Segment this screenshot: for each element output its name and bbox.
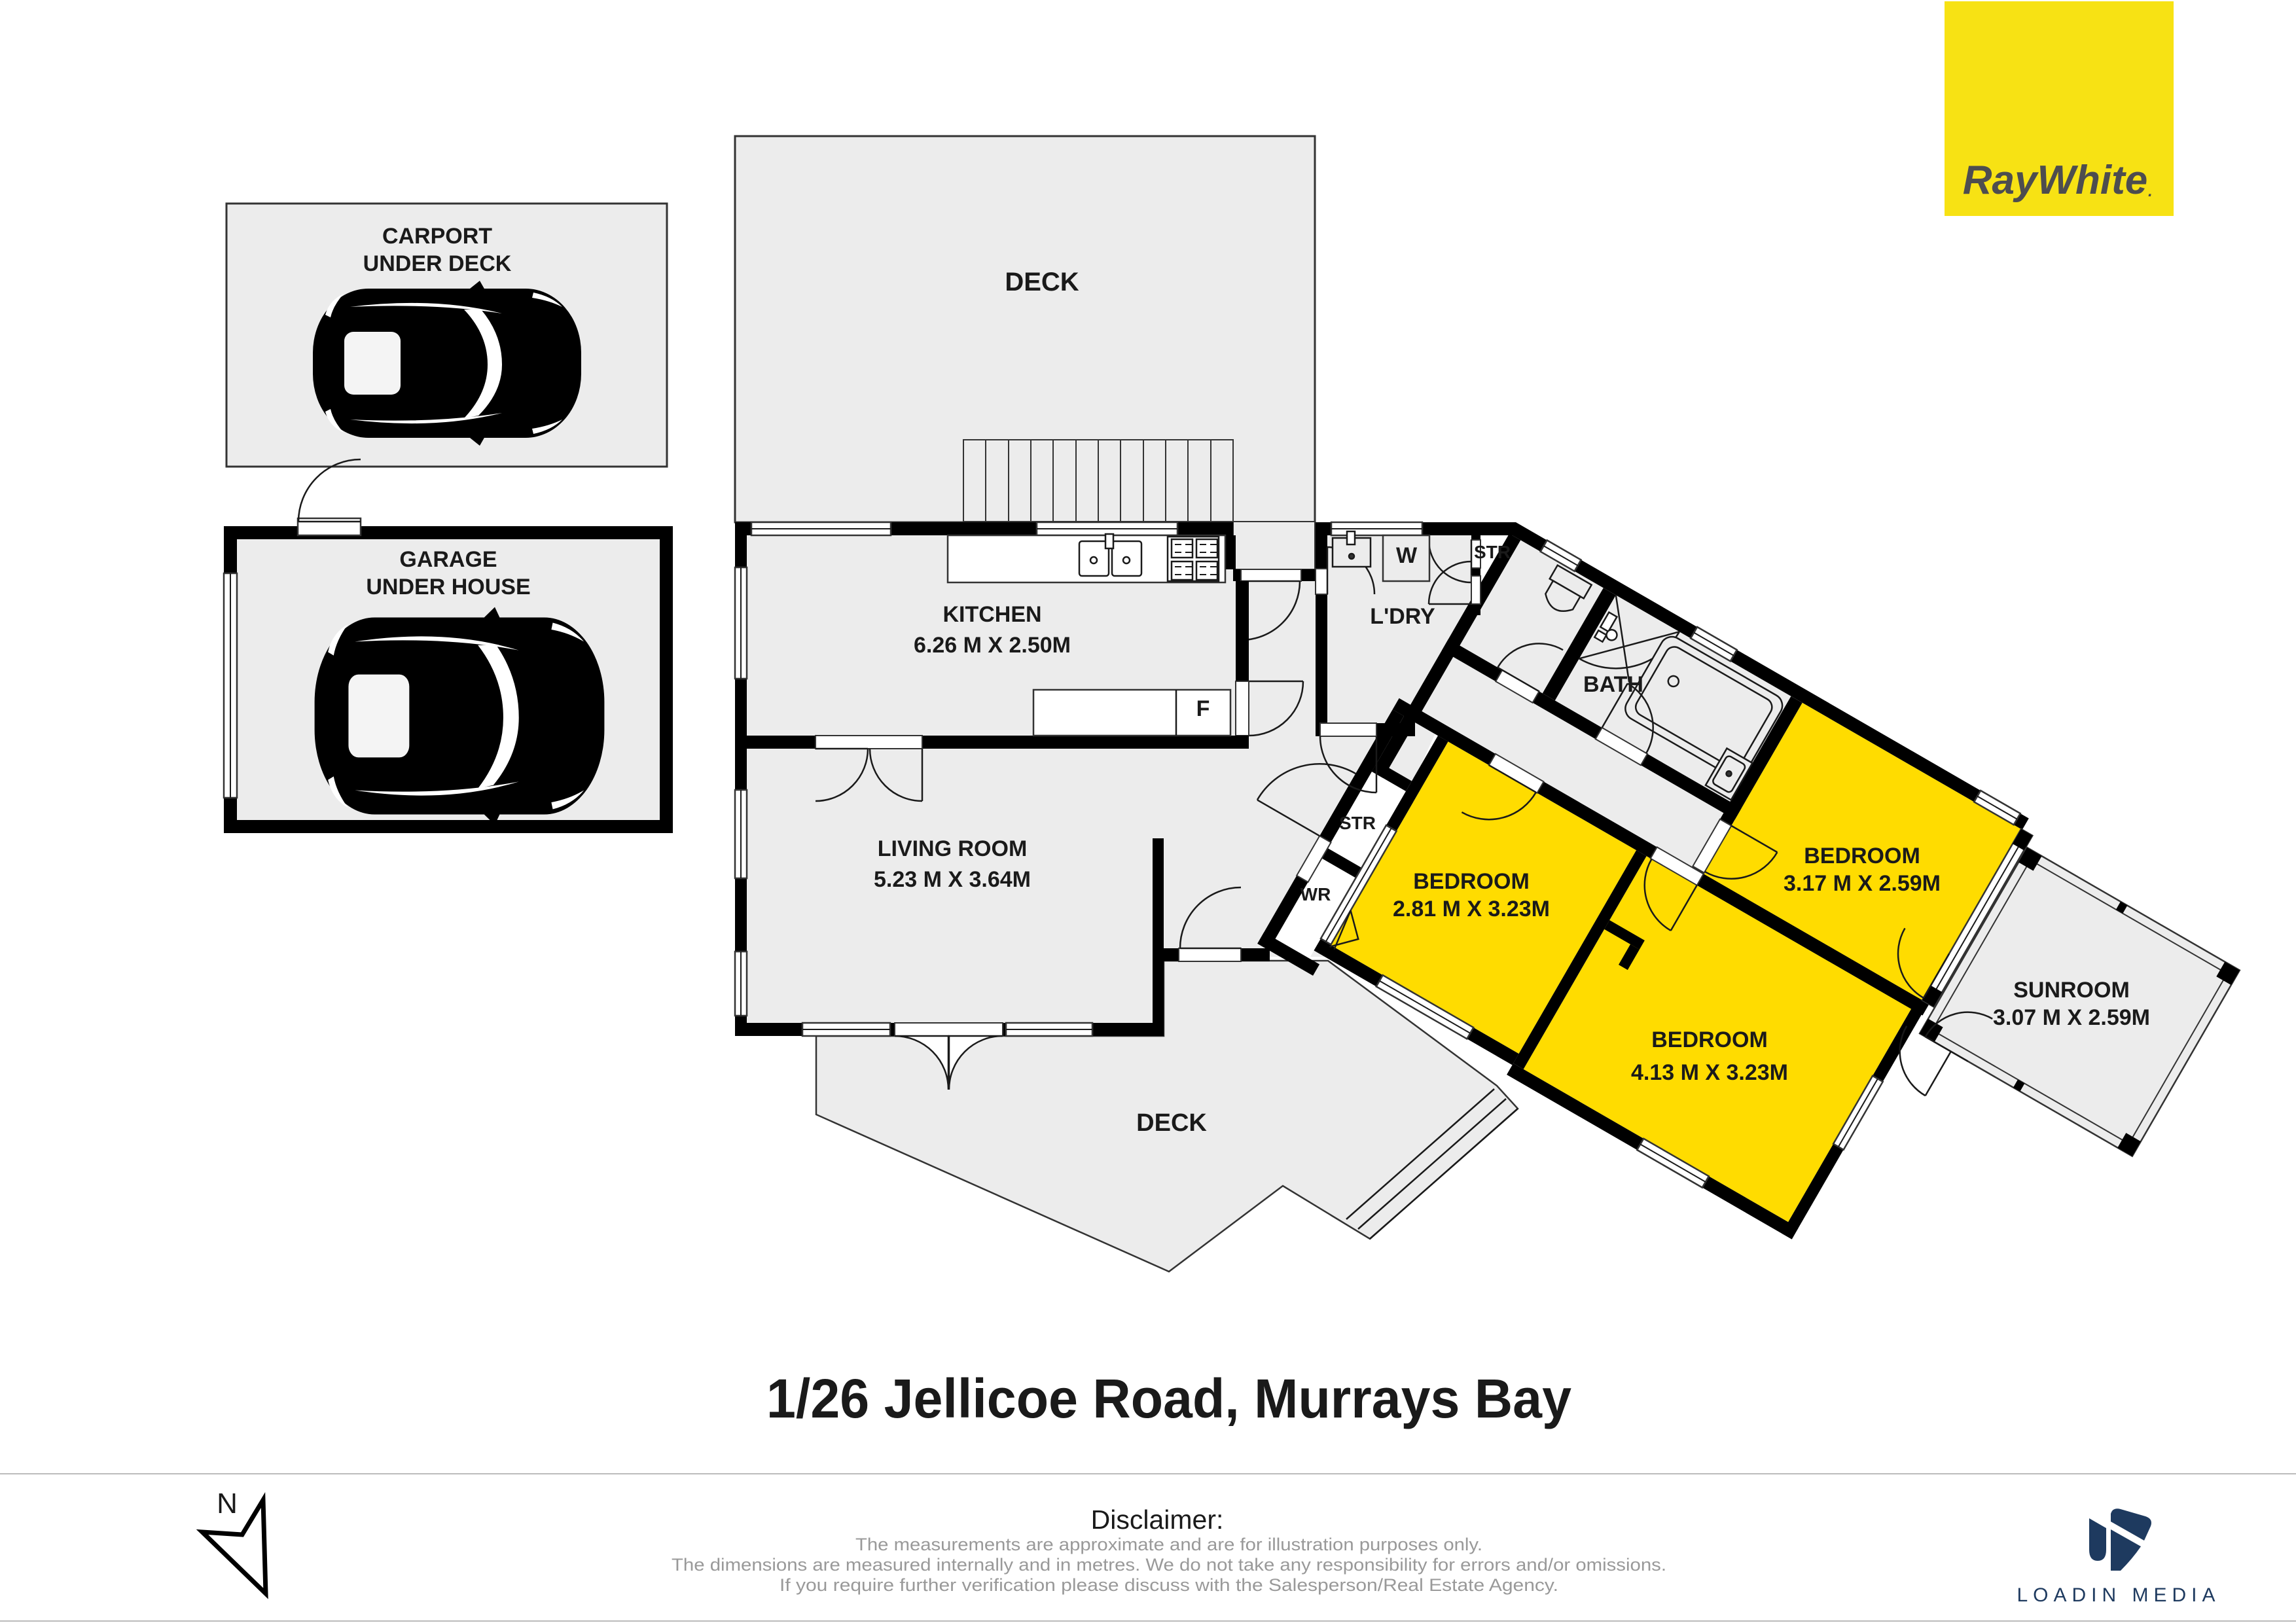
svg-text:The measurements are approxima: The measurements are approximate and are… — [855, 1535, 1482, 1554]
svg-text:RayWhite: RayWhite — [1963, 158, 2147, 203]
svg-text:LIVING ROOM: LIVING ROOM — [878, 836, 1028, 861]
svg-text:WR: WR — [1300, 884, 1331, 904]
svg-text:L'DRY: L'DRY — [1370, 604, 1435, 629]
svg-text:UNDER HOUSE: UNDER HOUSE — [366, 575, 530, 599]
svg-text:KITCHEN: KITCHEN — [942, 602, 1041, 627]
svg-text:1/26 Jellicoe Road, Murrays Ba: 1/26 Jellicoe Road, Murrays Bay — [766, 1368, 1571, 1429]
svg-text:3.07 M X 2.59M: 3.07 M X 2.59M — [1993, 1005, 2150, 1030]
svg-text:Disclaimer:: Disclaimer: — [1091, 1505, 1224, 1535]
svg-text:DECK: DECK — [1136, 1109, 1207, 1137]
svg-text:6.26 M X 2.50M: 6.26 M X 2.50M — [914, 633, 1071, 658]
svg-text:3.17 M X 2.59M: 3.17 M X 2.59M — [1784, 871, 1941, 896]
svg-text:W: W — [1396, 543, 1418, 568]
svg-text:STR: STR — [1339, 813, 1376, 833]
svg-text:SUNROOM: SUNROOM — [2013, 978, 2130, 1003]
svg-text:N: N — [217, 1488, 238, 1520]
svg-text:BEDROOM: BEDROOM — [1804, 844, 1920, 868]
svg-text:DECK: DECK — [1005, 268, 1079, 296]
svg-text:4.13 M X 3.23M: 4.13 M X 3.23M — [1631, 1060, 1788, 1085]
svg-text:F: F — [1196, 696, 1210, 721]
svg-text:BATH: BATH — [1583, 672, 1643, 697]
svg-text:.: . — [2148, 183, 2153, 200]
svg-text:CARPORT: CARPORT — [382, 224, 492, 249]
svg-text:UNDER DECK: UNDER DECK — [363, 251, 512, 276]
svg-text:5.23 M X 3.64M: 5.23 M X 3.64M — [874, 867, 1031, 892]
svg-text:2.81 M X 3.23M: 2.81 M X 3.23M — [1393, 897, 1550, 921]
svg-text:The dimensions are measured in: The dimensions are measured internally a… — [672, 1555, 1666, 1575]
svg-text:BEDROOM: BEDROOM — [1651, 1027, 1768, 1052]
svg-text:If you require further verific: If you require further verification plea… — [780, 1575, 1558, 1595]
svg-text:STR: STR — [1474, 542, 1511, 562]
svg-text:BEDROOM: BEDROOM — [1413, 869, 1530, 894]
svg-text:GARAGE: GARAGE — [399, 547, 497, 572]
svg-text:LOADIN MEDIA: LOADIN MEDIA — [2017, 1584, 2220, 1606]
